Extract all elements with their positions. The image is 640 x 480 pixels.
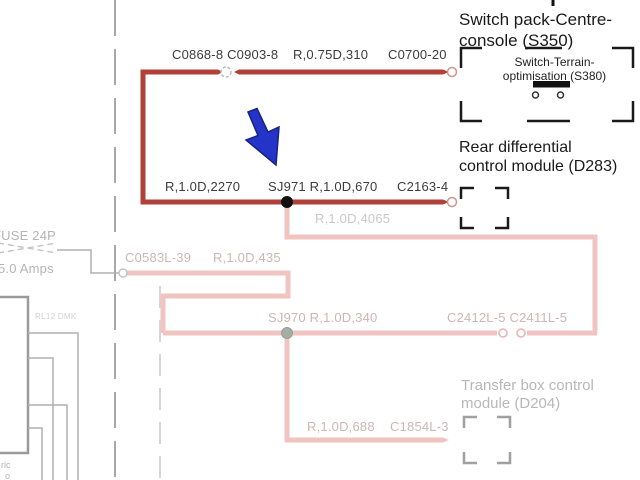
switch-terrain-label: Switch-Terrain- optimisation (S380) bbox=[477, 55, 632, 83]
wiring-diagram-canvas: Switch pack-Centre- console (S350) Switc… bbox=[0, 0, 640, 480]
label-wire-spec-r075d310: R,0.75D,310 bbox=[293, 47, 368, 62]
transfer-box-title: Transfer box control module (D204) bbox=[461, 377, 594, 413]
rear-diff-box-d283 bbox=[461, 188, 508, 228]
rear-diff-title-line2: control module (D283) bbox=[459, 157, 617, 176]
label-connector-c1854: C1854L-3 bbox=[390, 419, 449, 434]
label-fuse-rating: 5.0 Amps bbox=[0, 261, 54, 276]
connector-c0868-c0903 bbox=[221, 67, 231, 77]
transfer-box-d204 bbox=[464, 417, 510, 463]
background-wire bbox=[28, 428, 42, 480]
connector-c0700 bbox=[448, 68, 457, 77]
switch-pack-title: Switch pack-Centre- console (S350) bbox=[459, 9, 612, 51]
label-connectors-c2412-c2411: C2412L-5 C2411L-5 bbox=[447, 310, 567, 325]
label-fuse-name: FUSE 24P bbox=[0, 228, 56, 243]
wire-r10d435 bbox=[125, 273, 288, 333]
rear-diff-title: Rear differential control module (D283) bbox=[459, 138, 617, 176]
label-connectors-c0868-c0903: C0868-8 C0903-8 bbox=[172, 47, 278, 62]
label-connector-c0700: C0700-20 bbox=[388, 47, 447, 62]
label-connector-c2163: C2163-4 bbox=[397, 179, 448, 194]
switch-pack-title-line2: console (S350) bbox=[459, 30, 612, 51]
label-splice-sj971: SJ971 R,1.0D,670 bbox=[268, 179, 377, 194]
fuse-feed-wire bbox=[57, 250, 119, 273]
label-wire-spec-r10d688: R,1.0D,688 bbox=[307, 419, 375, 434]
label-connector-c0583: C0583L-39 bbox=[125, 250, 191, 265]
label-corner-fragment: ric bbox=[1, 460, 11, 470]
background-wire bbox=[28, 405, 67, 480]
pointer-arrow-annotation bbox=[246, 109, 279, 166]
switch-pack-title-line1: Switch pack-Centre- bbox=[459, 9, 612, 30]
transfer-box-title-line1: Transfer box control bbox=[461, 377, 594, 395]
label-corner-fragment: o bbox=[5, 471, 10, 480]
switch-terminal bbox=[533, 92, 539, 98]
switch-terrain-label-line2: optimisation (S380) bbox=[477, 69, 632, 83]
splice-sj971 bbox=[281, 196, 293, 208]
label-wire-spec-r10d435: R,1.0D,435 bbox=[213, 250, 281, 265]
splice-sj970 bbox=[282, 328, 293, 339]
label-splice-sj970: SJ970 R,1.0D,340 bbox=[268, 310, 377, 325]
transfer-box-title-line2: module (D204) bbox=[461, 395, 594, 413]
connector-c2412 bbox=[499, 329, 507, 337]
background-component-box bbox=[0, 297, 28, 453]
connector-c2411 bbox=[517, 329, 525, 337]
connector-c2163 bbox=[448, 198, 457, 207]
label-relay: RL12 DMK bbox=[35, 312, 77, 321]
wire-taper bbox=[443, 438, 449, 443]
connector-c0583-terminal bbox=[119, 269, 127, 277]
label-wire-spec-r10d4065: R,1.0D,4065 bbox=[315, 211, 390, 226]
switch-terminal bbox=[558, 92, 564, 98]
rear-diff-title-line1: Rear differential bbox=[459, 138, 617, 157]
background-wire bbox=[28, 358, 53, 480]
label-wire-spec-r10d2270: R,1.0D,2270 bbox=[165, 179, 240, 194]
switch-terrain-label-line1: Switch-Terrain- bbox=[477, 55, 632, 69]
